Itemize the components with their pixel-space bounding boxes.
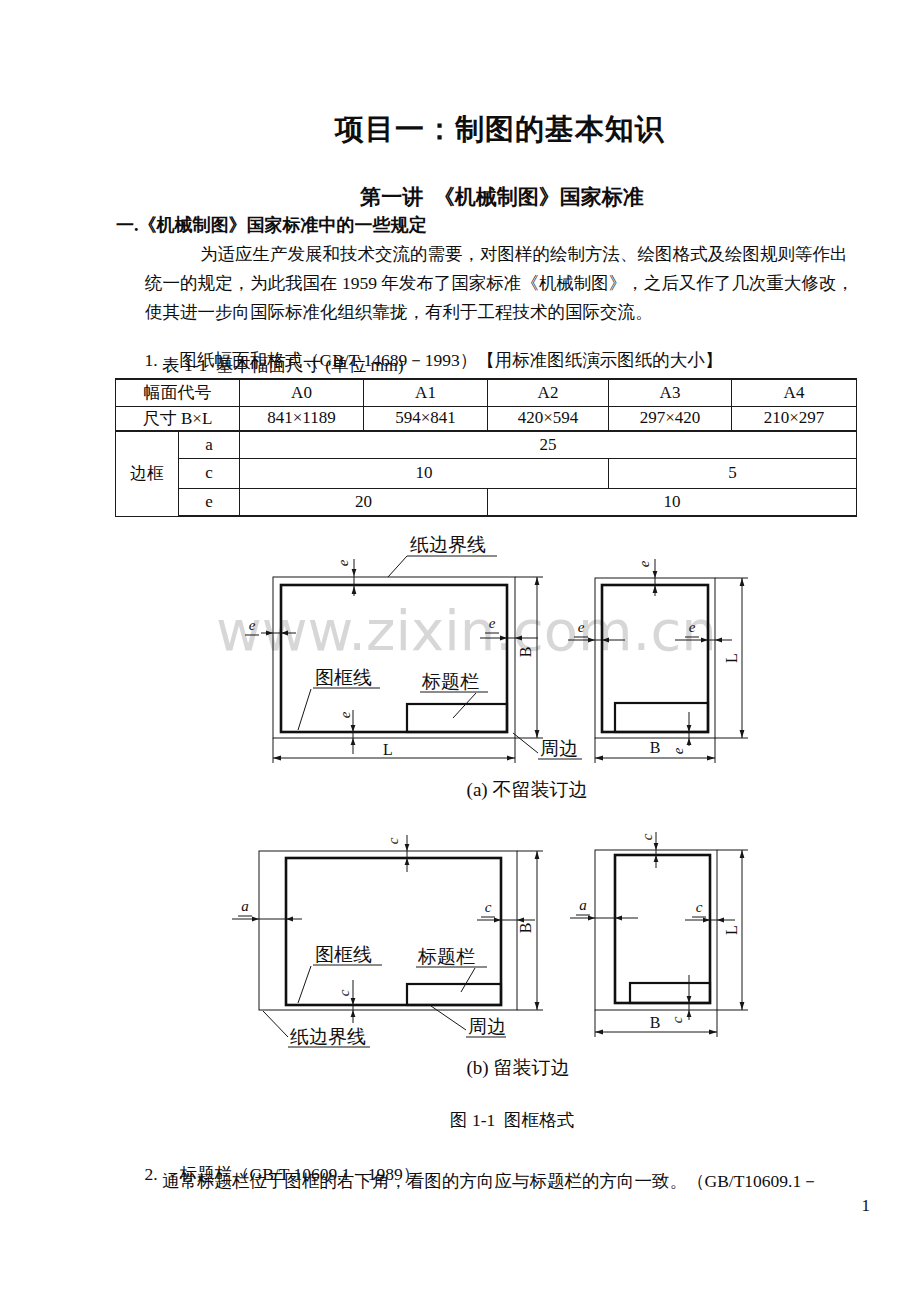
dim-a-left: a [232, 898, 302, 921]
figure-b-caption: (b) 留装订边 [318, 1055, 718, 1081]
svg-text:c: c [639, 833, 655, 840]
leader-line [461, 968, 475, 992]
dim-a-left: a [570, 897, 638, 920]
svg-text:周边: 周边 [540, 738, 578, 759]
table-row-c: c 10 5 [116, 458, 857, 488]
list-item-2-body: 通常标题栏位于图框的右下角，看图的方向应与标题栏的方向一致。（GB/T10609… [162, 1169, 819, 1193]
paper-edge-label: 纸边界线 [388, 534, 497, 577]
figure-b-drawing: a c c c [230, 820, 770, 1065]
dim-e-left: e [245, 617, 296, 635]
svg-text:标题栏: 标题栏 [421, 671, 479, 692]
frame-label-cell: 边框 [116, 431, 179, 516]
size-label-cell: 尺寸 B×L [116, 406, 240, 431]
leader-line [388, 556, 407, 577]
svg-text:B: B [517, 647, 534, 658]
dim-L: L [717, 850, 748, 1010]
dim-B: B [515, 577, 543, 738]
lecture-heading: 第一讲 《机械制图》国家标准 [42, 183, 920, 211]
paper-edge-rect [595, 578, 715, 738]
title-block-rect [407, 984, 501, 1005]
value-cell: 25 [240, 431, 857, 458]
frame-line-label: 图框线 [298, 667, 380, 730]
header-cell: A1 [364, 379, 488, 406]
paragraph-line-2: 统一的规定，为此我国在 1959 年发布了国家标准《机械制图》，之后又作了几次重… [145, 271, 854, 295]
title-block-rect [615, 703, 708, 732]
fig-a-left-sheet: 纸边界线 e e e [245, 534, 582, 763]
margin-label: 周边 [513, 733, 582, 759]
leader-line [513, 733, 538, 753]
header-cell: A3 [609, 379, 732, 406]
page-number: 1 [840, 1196, 870, 1216]
dim-e-right: e [675, 619, 732, 642]
svg-text:图框线: 图框线 [315, 944, 372, 965]
figure-a-caption: (a) 不留装订边 [327, 777, 727, 803]
svg-text:L: L [723, 653, 740, 663]
svg-text:L: L [383, 741, 393, 758]
document-page: www.zixin.com.cn 项目一：制图的基本知识 第一讲 《机械制图》国… [0, 0, 920, 1300]
title-block-label: 标题栏 [420, 671, 488, 718]
paragraph-line-3: 使其进一步向国际标准化组织靠拢，有利于工程技术的国际交流。 [145, 300, 653, 324]
table-row-a: 边框 a 25 [116, 431, 857, 458]
header-cell: A4 [732, 379, 857, 406]
svg-text:c: c [669, 1016, 685, 1023]
value-cell: 5 [609, 458, 857, 488]
frame-line-rect [281, 585, 507, 732]
page-title: 项目一：制图的基本知识 [40, 110, 920, 150]
svg-text:a: a [241, 898, 249, 914]
fig-b-right-sheet: a c c c [570, 832, 748, 1037]
fig-a-right-sheet: e e e e [568, 559, 748, 763]
leader-line [263, 1011, 288, 1037]
size-cell: 841×1189 [240, 406, 364, 431]
svg-text:周边: 周边 [468, 1016, 506, 1037]
dim-L: L [715, 578, 748, 738]
dim-c-top: c [385, 835, 409, 872]
dim-e-left: e [568, 619, 625, 642]
svg-text:标题栏: 标题栏 [417, 946, 475, 967]
row-key-cell: e [179, 488, 240, 516]
table-row-e: e 20 10 [116, 488, 857, 516]
leader-line [453, 693, 476, 718]
dim-c-right: c [477, 899, 535, 922]
frame-line-rect [615, 855, 710, 1003]
size-cell: 210×297 [732, 406, 857, 431]
size-cell: 420×594 [488, 406, 609, 431]
header-cell: A0 [240, 379, 364, 406]
dim-c-bottom: c [336, 980, 355, 1023]
size-cell: 297×420 [609, 406, 732, 431]
title-block-rect [630, 983, 710, 1003]
title-block-rect [407, 704, 507, 732]
svg-text:图框线: 图框线 [315, 667, 372, 688]
figure-a-drawing: 纸边界线 e e e [230, 532, 770, 775]
paper-edge-rect [595, 850, 717, 1010]
svg-text:c: c [336, 989, 352, 996]
svg-text:e: e [689, 619, 696, 635]
dim-B: B [595, 738, 715, 763]
svg-text:B: B [650, 1014, 661, 1031]
svg-text:e: e [249, 617, 256, 633]
dim-L: L [273, 738, 515, 763]
table-header-row: 幅面代号 A0 A1 A2 A3 A4 [116, 379, 857, 406]
value-cell: 10 [240, 458, 609, 488]
paragraph-line-1: 为适应生产发展和技术交流的需要，对图样的绘制方法、绘图格式及绘图规则等作出 [200, 242, 848, 266]
svg-text:e: e [670, 747, 686, 754]
svg-text:e: e [335, 559, 351, 566]
svg-text:a: a [579, 897, 587, 913]
row-key-cell: c [179, 458, 240, 488]
leader-line [298, 689, 311, 730]
svg-text:B: B [517, 923, 534, 934]
dim-e-right: e [480, 615, 538, 640]
svg-text:B: B [650, 739, 661, 756]
header-cell: 幅面代号 [116, 379, 240, 406]
dim-B: B [517, 851, 543, 1010]
svg-text:L: L [723, 925, 740, 935]
paper-edge-rect [259, 851, 517, 1010]
margin-label: 周边 [431, 1006, 506, 1037]
frame-line-rect [602, 585, 708, 732]
svg-text:e: e [636, 560, 652, 567]
size-cell: 594×841 [364, 406, 488, 431]
paper-edge-rect [273, 577, 515, 738]
svg-text:c: c [696, 899, 703, 915]
paper-size-table: 幅面代号 A0 A1 A2 A3 A4 尺寸 B×L 841×1189 594×… [115, 378, 857, 517]
section-heading: 一.《机械制图》国家标准中的一些规定 [116, 213, 427, 237]
table-caption: 表 1-1 基本幅面尺寸 (单位 mm) [162, 353, 404, 377]
svg-text:纸边界线: 纸边界线 [410, 534, 486, 555]
svg-text:c: c [385, 837, 401, 844]
svg-text:e: e [578, 619, 585, 635]
leader-line [298, 966, 311, 1003]
value-cell: 10 [488, 488, 857, 516]
header-cell: A2 [488, 379, 609, 406]
table-size-row: 尺寸 B×L 841×1189 594×841 420×594 297×420 … [116, 406, 857, 431]
svg-text:e: e [489, 615, 496, 631]
value-cell: 20 [240, 488, 488, 516]
svg-text:c: c [485, 899, 492, 915]
fig-b-left-sheet: a c c c [232, 835, 543, 1047]
svg-text:e: e [337, 711, 353, 718]
figure-caption: 图 1-1 图框格式 [312, 1108, 712, 1132]
dim-B: B [595, 1010, 717, 1037]
row-key-cell: a [179, 431, 240, 458]
svg-text:纸边界线: 纸边界线 [290, 1026, 366, 1047]
